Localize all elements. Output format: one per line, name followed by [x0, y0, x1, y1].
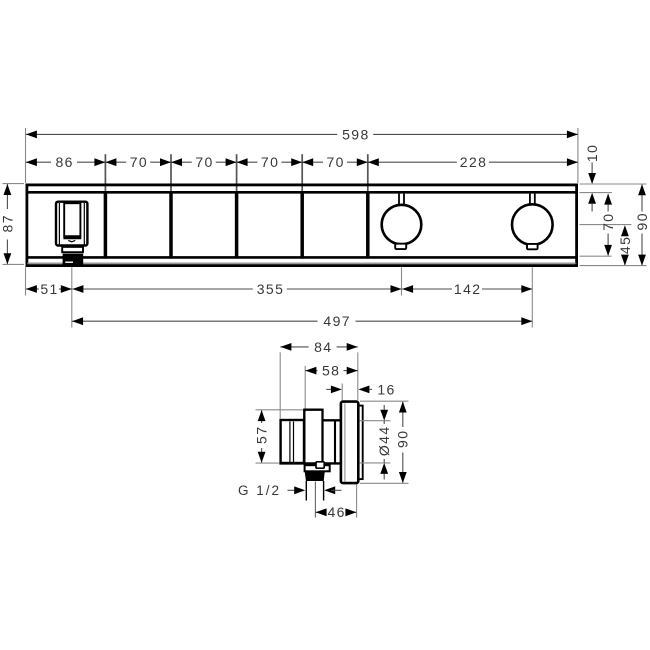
svg-text:70: 70 — [195, 154, 213, 170]
svg-text:355: 355 — [257, 281, 285, 297]
svg-text:90: 90 — [634, 212, 650, 230]
svg-text:497: 497 — [323, 313, 351, 329]
svg-text:Ø44: Ø44 — [376, 425, 392, 456]
svg-text:70: 70 — [600, 213, 616, 231]
svg-text:70: 70 — [327, 154, 345, 170]
svg-text:58: 58 — [322, 363, 340, 379]
svg-text:142: 142 — [454, 281, 482, 297]
svg-text:228: 228 — [460, 154, 488, 170]
svg-text:G 1/2: G 1/2 — [238, 483, 281, 498]
svg-text:598: 598 — [342, 126, 370, 142]
svg-text:84: 84 — [314, 339, 332, 355]
svg-text:46: 46 — [328, 504, 346, 520]
svg-text:45: 45 — [617, 236, 633, 254]
svg-text:70: 70 — [261, 154, 279, 170]
svg-text:10: 10 — [584, 144, 600, 162]
svg-text:90: 90 — [395, 430, 411, 448]
svg-text:86: 86 — [56, 154, 74, 170]
svg-text:57: 57 — [254, 426, 270, 444]
svg-text:16: 16 — [377, 381, 395, 397]
svg-text:51: 51 — [40, 281, 58, 297]
svg-text:70: 70 — [130, 154, 148, 170]
svg-text:87: 87 — [0, 214, 15, 232]
